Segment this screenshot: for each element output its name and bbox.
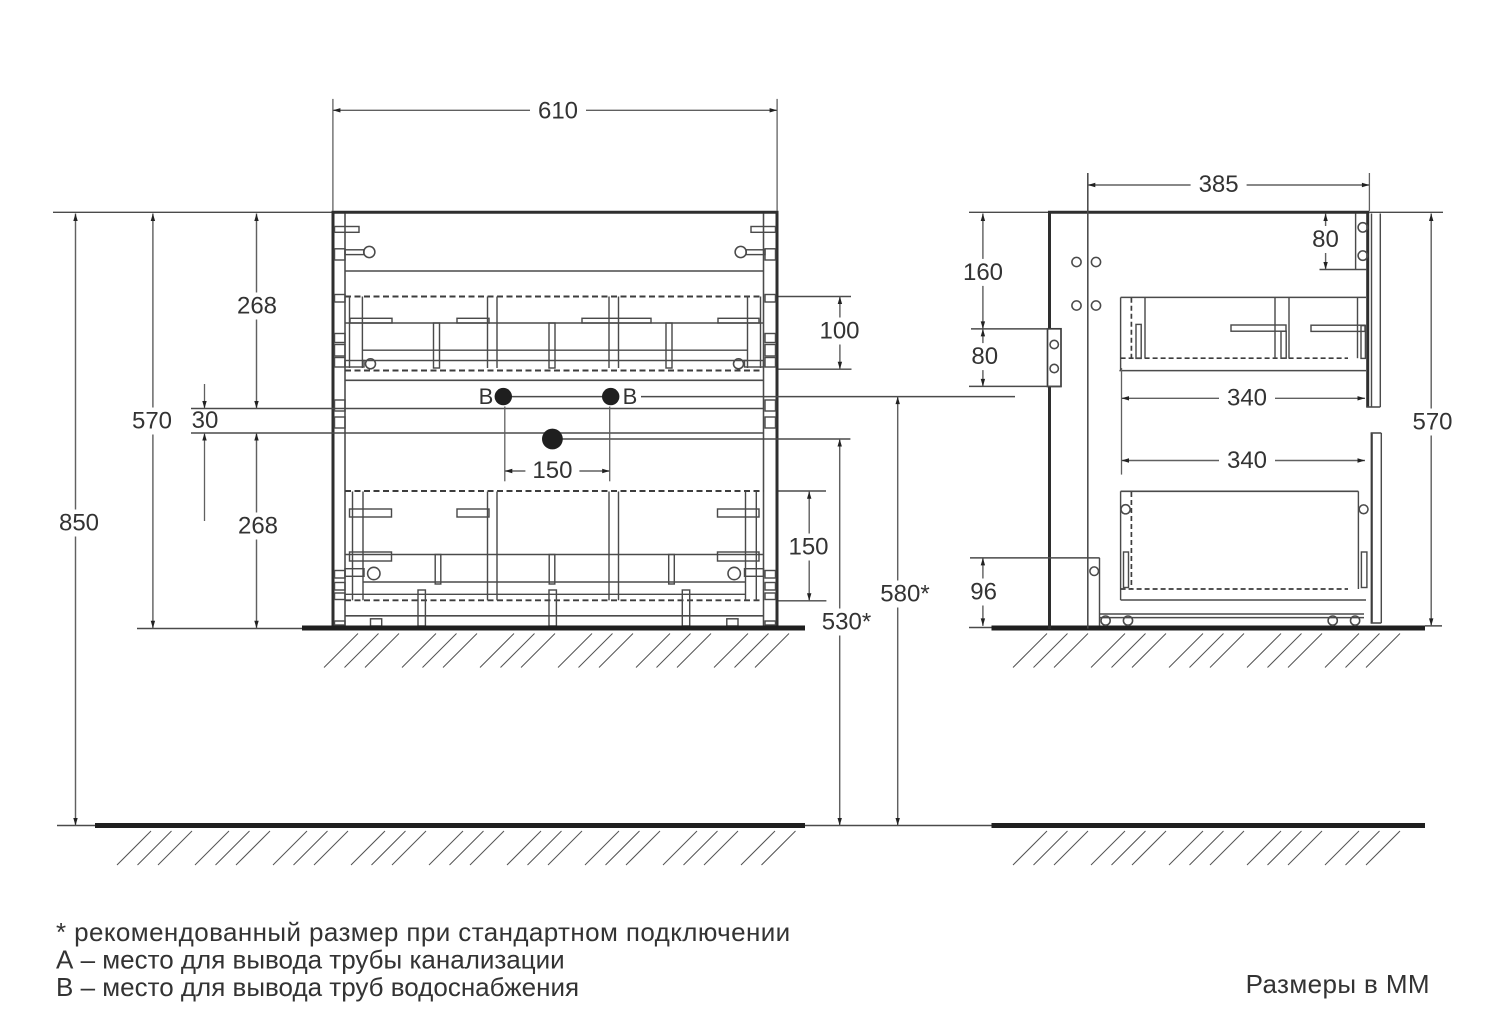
svg-text:850: 850	[59, 510, 99, 537]
svg-text:* рекомендованный размер при с: * рекомендованный размер при стандартном…	[56, 917, 791, 947]
svg-text:80: 80	[1312, 226, 1339, 253]
svg-text:340: 340	[1227, 385, 1267, 412]
svg-text:268: 268	[237, 293, 277, 320]
svg-text:610: 610	[538, 97, 578, 124]
svg-text:80: 80	[971, 343, 998, 370]
svg-text:В: В	[479, 384, 494, 409]
svg-text:В – место для вывода труб водо: В – место для вывода труб водоснабжения	[56, 972, 579, 1002]
svg-text:150: 150	[788, 534, 828, 561]
svg-text:570: 570	[132, 408, 172, 435]
svg-text:В: В	[623, 384, 638, 409]
svg-text:580*: 580*	[880, 581, 929, 608]
svg-text:150: 150	[532, 457, 572, 484]
svg-text:385: 385	[1199, 171, 1239, 198]
svg-text:96: 96	[970, 579, 997, 606]
svg-text:Размеры в ММ: Размеры в ММ	[1246, 969, 1430, 999]
svg-text:268: 268	[238, 513, 278, 540]
svg-text:570: 570	[1412, 409, 1452, 436]
svg-text:530*: 530*	[822, 609, 871, 636]
svg-text:340: 340	[1227, 447, 1267, 474]
svg-text:100: 100	[819, 318, 859, 345]
svg-text:А – место для вывода трубы кан: А – место для вывода трубы канализации	[56, 945, 565, 975]
svg-text:160: 160	[963, 259, 1003, 286]
svg-text:30: 30	[192, 407, 219, 434]
